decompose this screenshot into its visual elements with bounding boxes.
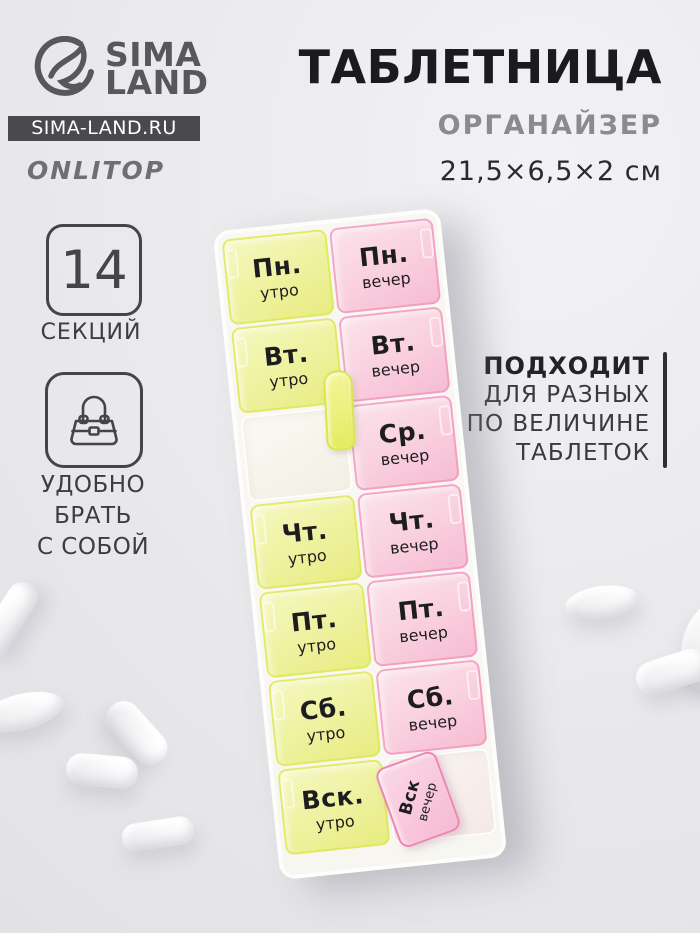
cell-day-label: Сб. <box>298 692 348 726</box>
product-title: ТАБЛЕТНИЦА <box>299 40 662 94</box>
pill-capsule <box>65 752 140 790</box>
cell-day-label: Вт. <box>369 327 416 360</box>
cell-day-label: Пт. <box>396 592 445 626</box>
open-pink-lid-label: Вск вечер <box>395 776 440 824</box>
cell-time-label: вечер <box>389 534 439 558</box>
cell-mon-morning: Пн. утро <box>221 229 334 325</box>
cell-tue-evening: Вт. вечер <box>338 306 451 402</box>
cell-day-label: Вск. <box>300 780 365 815</box>
fit-divider-bar <box>663 352 667 468</box>
portable-line-2: С СОБОЙ <box>0 532 186 563</box>
cell-wed-evening: Ср. вечер <box>347 394 460 490</box>
fit-feature: ПОДХОДИТ ДЛЯ РАЗНЫХ ПО ВЕЛИЧИНЕ ТАБЛЕТОК <box>467 352 667 468</box>
site-url-badge: SIMA-LAND.RU <box>8 116 200 141</box>
cell-time-label: утро <box>268 369 309 392</box>
cell-wed-morning-open <box>240 406 353 502</box>
pill-tablet <box>563 581 641 624</box>
sub-brand-logo: ONLITOP <box>27 156 165 185</box>
brand-logo-text: SIMA LAND <box>105 41 209 96</box>
cell-sat-evening: Сб. вечер <box>375 660 488 756</box>
cell-thu-morning: Чт. утро <box>249 494 362 590</box>
sections-count-badge: 14 <box>46 224 142 316</box>
product-subtitle: ОРГАНАЙЗЕР <box>299 110 662 141</box>
portable-line-1: УДОБНО БРАТЬ <box>0 470 186 532</box>
cell-time-label: вечер <box>408 711 458 735</box>
logo-line-2: LAND <box>105 69 209 97</box>
fit-line-2: ПО ВЕЛИЧИНЕ <box>467 410 650 439</box>
brand-logo: SIMA LAND <box>33 36 209 102</box>
pill-capsule <box>632 644 700 699</box>
sections-count: 14 <box>60 240 127 301</box>
cell-time-label: утро <box>296 634 337 657</box>
cell-day-label: Пн. <box>358 239 410 273</box>
cell-mon-evening: Пн. вечер <box>328 218 441 314</box>
fit-heading: ПОДХОДИТ <box>467 352 650 381</box>
cell-fri-evening: Пт. вечер <box>366 571 479 667</box>
cell-time-label: утро <box>259 280 300 303</box>
product-image: SIMA LAND SIMA-LAND.RU ONLITOP ТАБЛЕТНИЦ… <box>0 0 700 933</box>
pill-tablet <box>0 684 67 739</box>
cell-day-label: Пт. <box>289 604 338 638</box>
open-yellow-lid <box>322 369 355 450</box>
cell-day-label: Пн. <box>251 250 303 284</box>
cell-fri-morning: Пт. утро <box>259 582 372 678</box>
pill-organizer-grid: Пн. утро Пн. вечер Вт. утро Вт. вечер Ср… <box>221 218 497 856</box>
portable-label: УДОБНО БРАТЬ С СОБОЙ <box>0 470 186 563</box>
cell-thu-evening: Чт. вечер <box>356 483 469 579</box>
dolphin-logo-icon <box>33 36 97 102</box>
cell-time-label: утро <box>315 811 356 834</box>
cell-sun-morning: Вск. утро <box>277 759 390 855</box>
pill-organizer: Пн. утро Пн. вечер Вт. утро Вт. вечер Ср… <box>213 208 508 880</box>
cell-day-label: Ср. <box>377 416 427 450</box>
pill-tablet <box>0 576 43 663</box>
sections-label: СЕКЦИЙ <box>1 320 181 345</box>
portable-feature-badge <box>45 372 143 468</box>
fit-line-1: ДЛЯ РАЗНЫХ <box>467 381 650 410</box>
cell-time-label: вечер <box>361 269 411 293</box>
cell-day-label: Чт. <box>387 504 435 538</box>
fit-text: ПОДХОДИТ ДЛЯ РАЗНЫХ ПО ВЕЛИЧИНЕ ТАБЛЕТОК <box>467 352 650 468</box>
cell-time-label: утро <box>306 722 347 745</box>
handbag-icon <box>64 389 124 451</box>
product-dimensions: 21,5×6,5×2 см <box>299 156 662 187</box>
cell-day-label: Чт. <box>280 515 328 549</box>
cell-day-label: Сб. <box>405 681 455 715</box>
cell-time-label: вечер <box>398 622 448 646</box>
fit-line-3: ТАБЛЕТОК <box>467 439 650 468</box>
pill-tablet <box>120 815 195 854</box>
cell-sat-morning: Сб. утро <box>268 671 381 767</box>
cell-time-label: утро <box>287 546 328 569</box>
cell-time-label: вечер <box>380 445 430 469</box>
cell-sun-evening-open: Вск вечер <box>384 748 497 844</box>
cell-time-label: вечер <box>370 357 420 381</box>
cell-day-label: Вт. <box>262 339 309 372</box>
product-header: ТАБЛЕТНИЦА ОРГАНАЙЗЕР 21,5×6,5×2 см <box>299 40 662 187</box>
